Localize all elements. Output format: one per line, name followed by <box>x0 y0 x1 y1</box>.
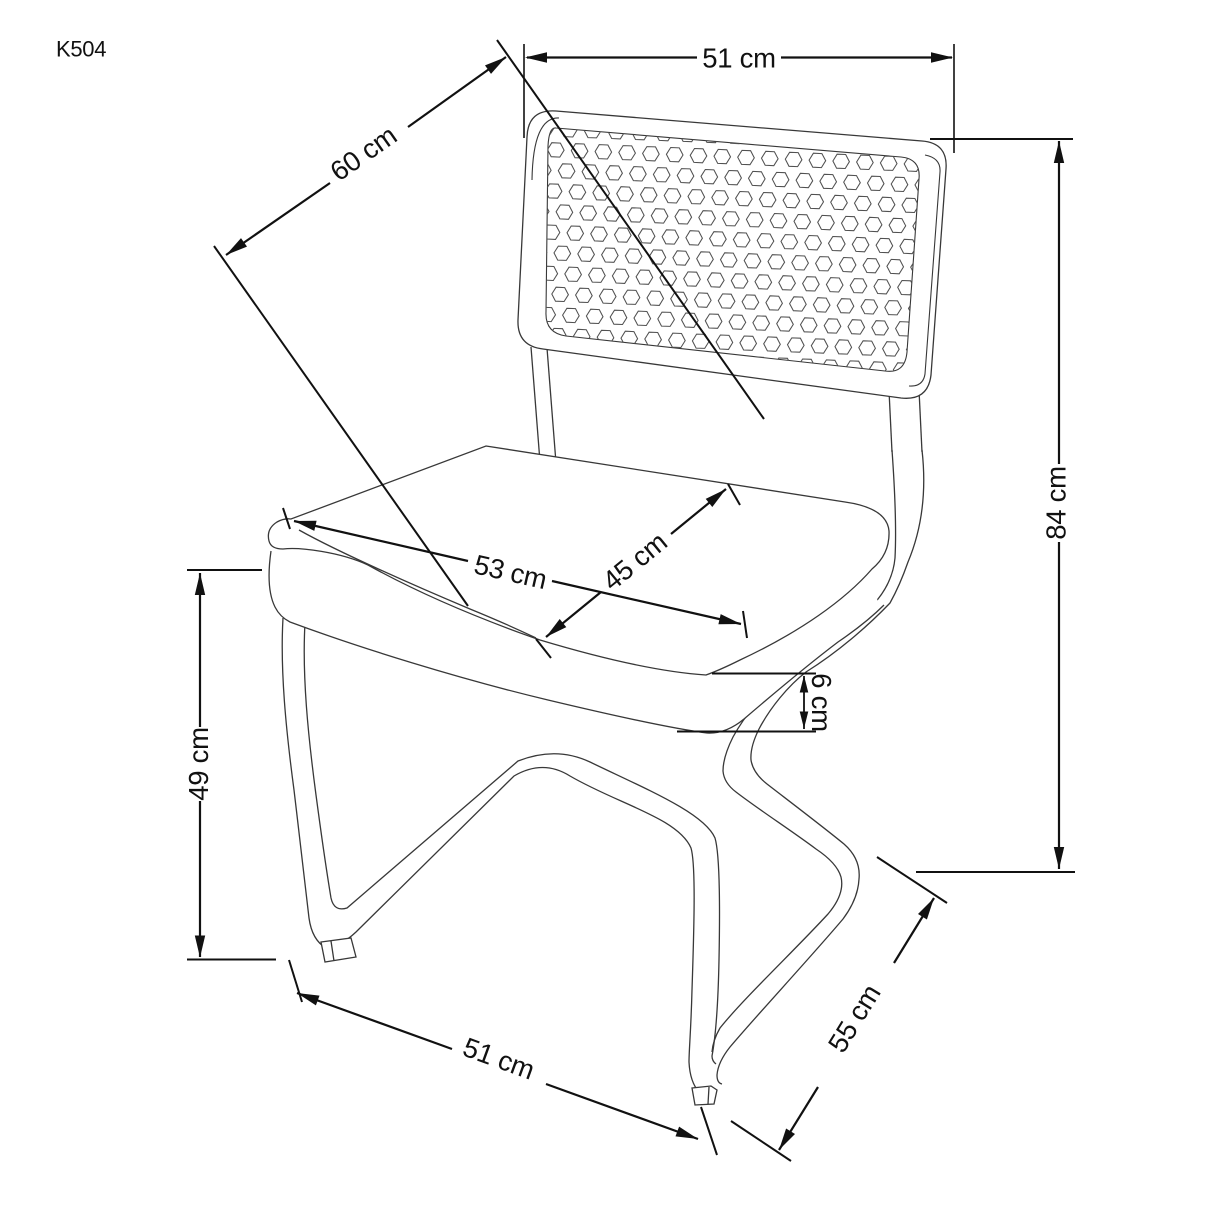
svg-text:49 cm: 49 cm <box>183 727 214 800</box>
svg-text:6 cm: 6 cm <box>806 673 837 731</box>
svg-text:84 cm: 84 cm <box>1040 466 1071 539</box>
svg-text:51 cm: 51 cm <box>702 42 775 73</box>
svg-text:K504: K504 <box>56 36 106 61</box>
